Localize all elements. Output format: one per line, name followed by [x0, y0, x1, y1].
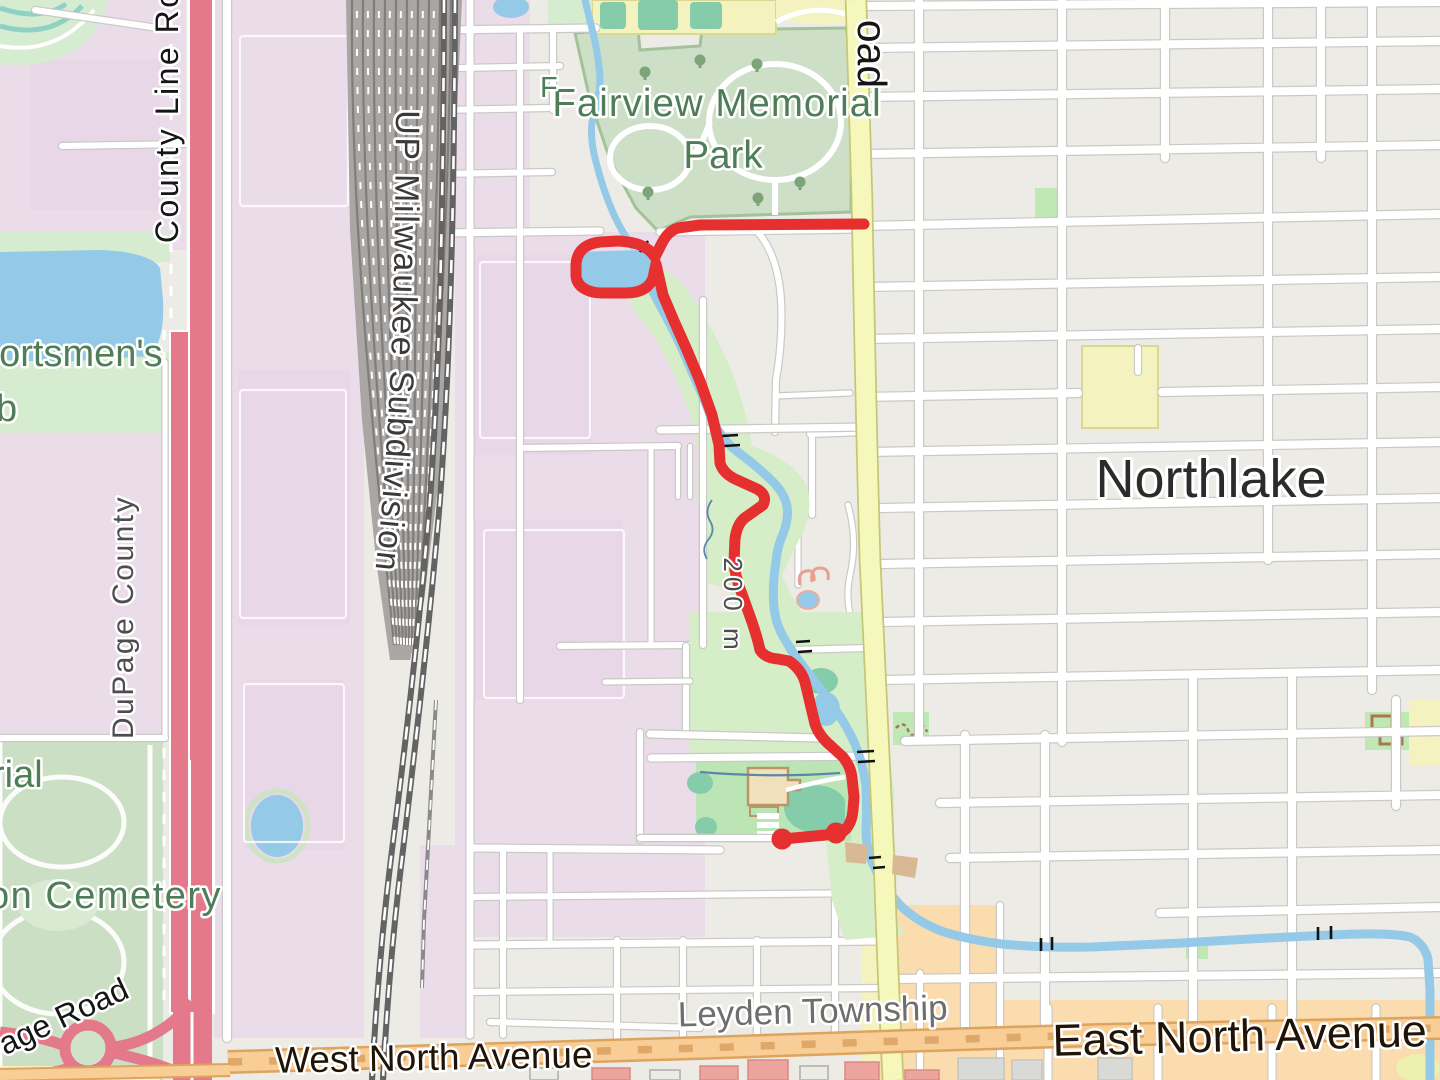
svg-text:rial: rial [0, 754, 43, 796]
svg-text:Leyden Township: Leyden Township [677, 988, 948, 1034]
svg-text:200 m: 200 m [718, 557, 748, 654]
svg-text:on Cemetery: on Cemetery [0, 875, 222, 917]
svg-text:oad: oad [849, 20, 895, 88]
svg-text:County Line Road: County Line Road [149, 0, 185, 243]
svg-text:b: b [0, 388, 17, 430]
svg-text:Northlake: Northlake [1095, 449, 1326, 509]
svg-text:Fairview Memorial: Fairview Memorial [552, 82, 881, 125]
svg-text:East North Avenue: East North Avenue [1052, 1005, 1428, 1066]
svg-text:DuPage County: DuPage County [107, 495, 140, 739]
svg-text:F: F [540, 72, 558, 104]
svg-text:portsmen's: portsmen's [0, 333, 163, 375]
svg-text:Park: Park [683, 134, 763, 177]
svg-text:West North Avenue: West North Avenue [275, 1034, 593, 1080]
